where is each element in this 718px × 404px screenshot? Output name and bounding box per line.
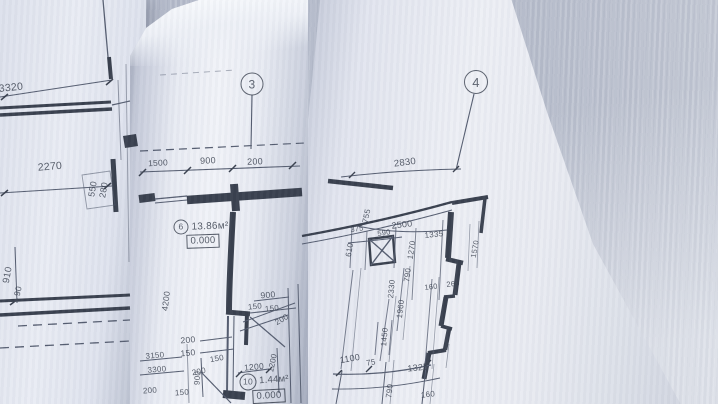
blueprint-sheet-left	[0, 0, 146, 404]
blueprint-sheet-middle	[130, 0, 308, 404]
photo-scene: 3320227055028091090 31500900200613.86м²0…	[0, 0, 718, 404]
